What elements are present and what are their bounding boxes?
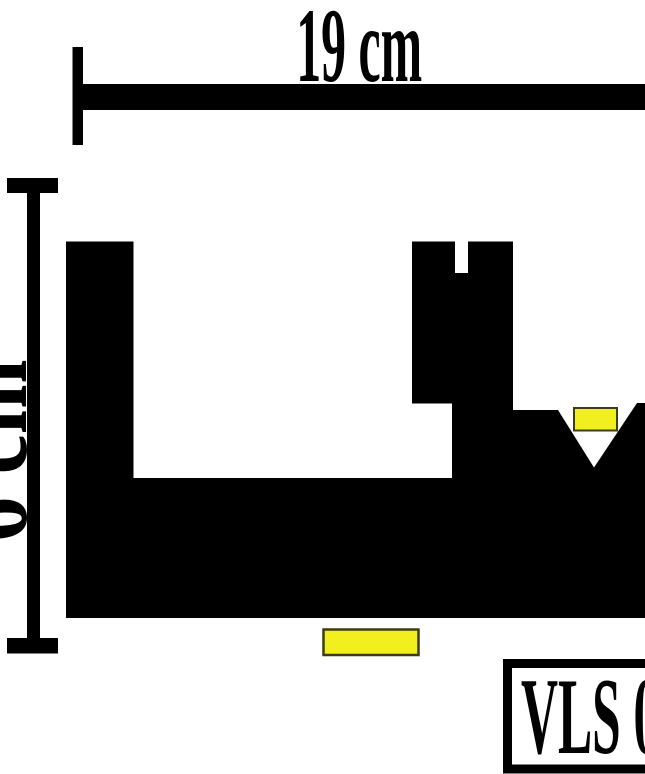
profile-base-slab xyxy=(66,478,645,618)
profile-left-column xyxy=(66,242,134,479)
base-highlight-marker xyxy=(324,630,419,656)
v-groove-highlight-marker xyxy=(574,408,617,431)
profile-tower-with-slot xyxy=(412,242,513,411)
horizontal-dimension-label: 19 cm xyxy=(296,0,414,99)
caption-label: VLS 0 xyxy=(521,662,645,771)
vertical-dimension-label: 6 cm xyxy=(0,359,44,542)
horizontal-dimension-left-tick xyxy=(73,47,84,145)
diagram-canvas: 19 cm 6 cm VLS 0 xyxy=(0,0,645,774)
vertical-dimension-bottom-tick xyxy=(7,638,58,654)
